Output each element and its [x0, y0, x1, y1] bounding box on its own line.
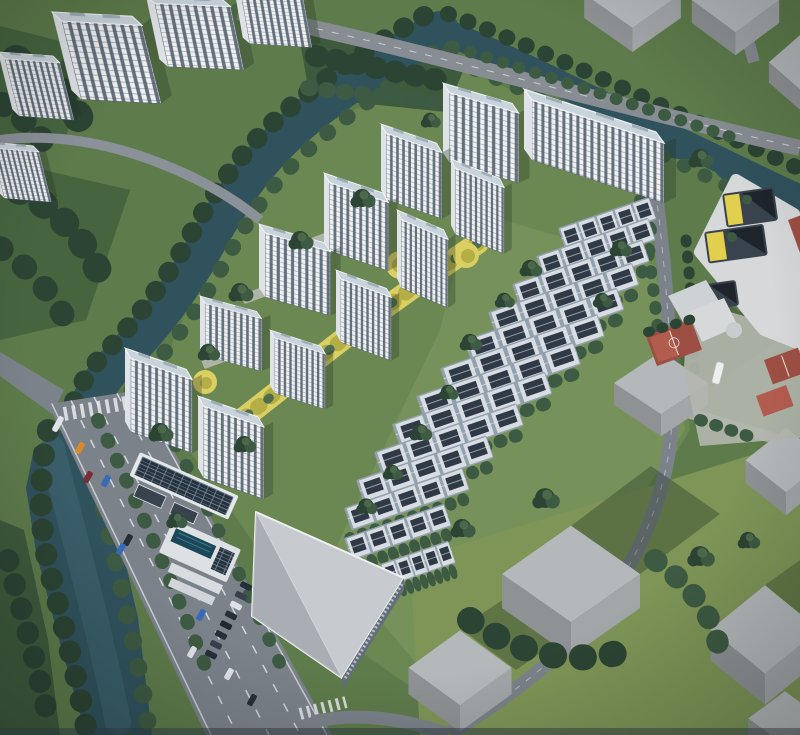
vignette — [0, 0, 800, 735]
aerial-rendering — [0, 0, 800, 735]
aerial-rendering-canvas — [0, 0, 800, 735]
bottom-edge — [0, 728, 800, 735]
